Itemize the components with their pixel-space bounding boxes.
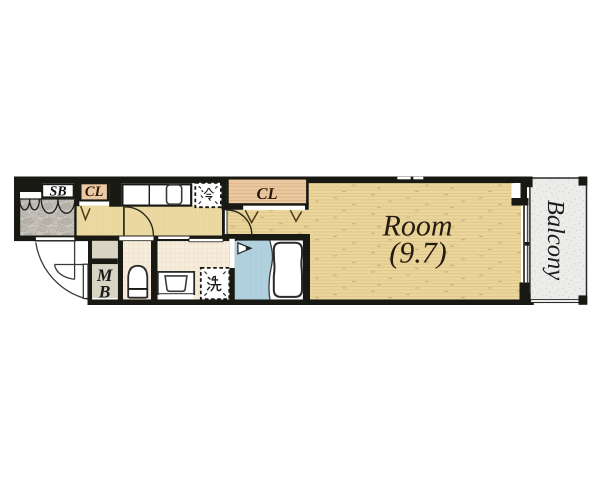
- svg-text:CL: CL: [256, 184, 277, 203]
- svg-text:Balcony: Balcony: [542, 200, 569, 280]
- svg-text:B: B: [98, 282, 111, 302]
- svg-text:CL: CL: [85, 184, 104, 200]
- svg-text:SB: SB: [49, 185, 66, 200]
- svg-text:(9.7): (9.7): [389, 237, 446, 270]
